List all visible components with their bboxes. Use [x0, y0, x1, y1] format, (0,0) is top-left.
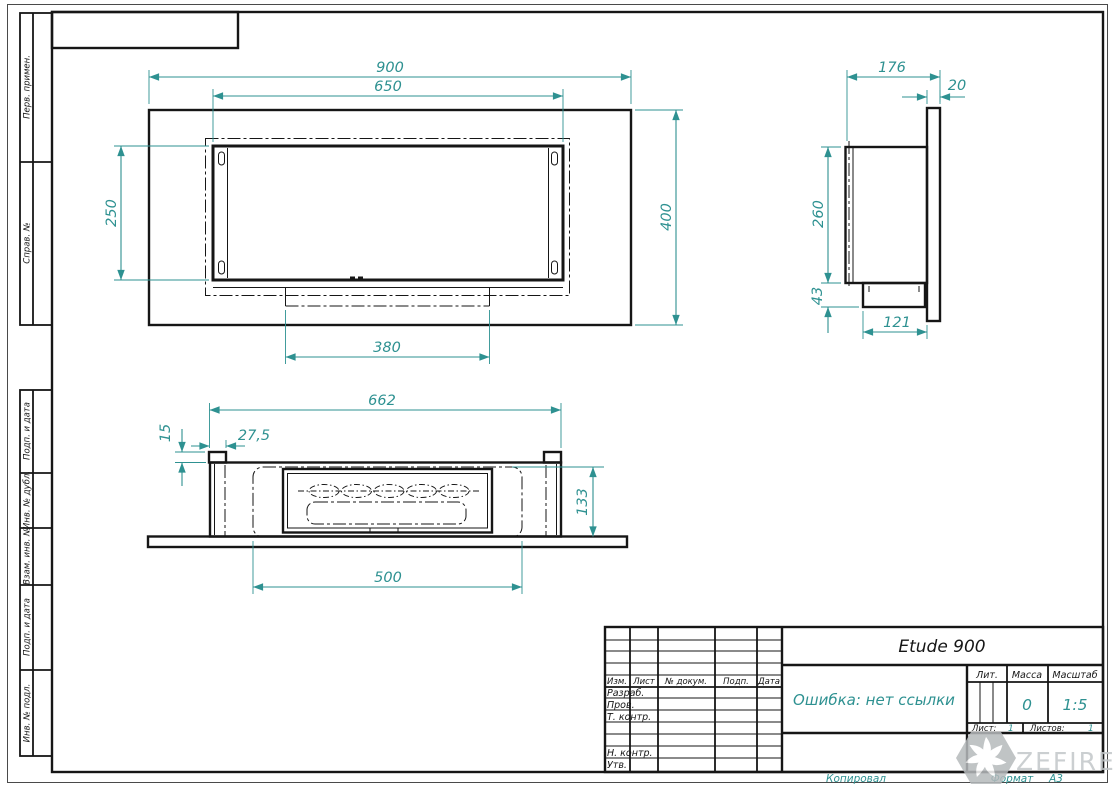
tb-col-podp: Подп. — [723, 677, 749, 687]
tb-row-razrab: Разраб. — [607, 688, 644, 699]
watermark-logo: ZEFIRE — [956, 732, 1114, 784]
bottom-view: 662 15 27,5 133 500 — [148, 393, 627, 594]
dim-side-bottom-box-depth: 121 — [883, 315, 911, 331]
tb-row-nkontr: Н. контр. — [607, 748, 653, 759]
margin-label-perv-primen: Перв. примен. — [23, 55, 33, 119]
drawing-sheet: Перв. примен. Справ. № Подп. и дата Инв.… — [0, 0, 1114, 786]
dim-bottom-tab-offset: 27,5 — [238, 428, 270, 444]
margin-label-podp-data-top: Подп. и дата — [23, 402, 33, 460]
margin-label-vzam-inv: Взам. инв. № — [23, 527, 33, 585]
margin-label-podp-data-bottom: Подп. и дата — [23, 598, 33, 656]
tb-sheets-label: Листов: — [1029, 724, 1065, 734]
tb-document-name: Ошибка: нет ссылки — [793, 691, 955, 709]
margin-label-sprav-no: Справ. № — [23, 222, 33, 264]
dim-side-depth: 176 — [878, 60, 906, 76]
dim-front-opening-height: 250 — [104, 199, 120, 227]
tb-col-data: Дата — [757, 677, 780, 687]
margin-label-inv-podl: Инв. № подл. — [23, 684, 33, 743]
dim-bottom-tab-height: 15 — [158, 424, 174, 442]
tb-mass-label: Масса — [1012, 670, 1042, 681]
tb-lit-label: Лит. — [975, 670, 998, 681]
side-view: 176 20 260 43 121 — [810, 60, 966, 339]
tb-designation: Etude 900 — [898, 637, 985, 657]
dim-front-burner-box-width: 380 — [373, 340, 401, 356]
dim-bottom-burner-width: 500 — [374, 570, 402, 586]
reserve-box — [52, 12, 238, 48]
dim-front-width: 900 — [376, 60, 404, 76]
margin-label-inv-dubl: Инв. № дубл. — [23, 471, 33, 529]
tb-sheet-value: 1 — [1008, 724, 1014, 734]
dim-side-panel-thickness: 20 — [948, 78, 966, 94]
tb-row-tkontr: Т. контр. — [607, 712, 651, 723]
tb-col-list: Лист — [632, 677, 656, 687]
margin-column: Перв. примен. Справ. № Подп. и дата Инв.… — [20, 13, 52, 756]
footer-copied-label: Копировал — [826, 773, 886, 785]
dim-bottom-body-width: 662 — [368, 393, 396, 409]
dim-front-opening-width: 650 — [374, 79, 402, 95]
tb-col-dokum: № докум. — [664, 677, 707, 687]
front-view: 900 650 250 400 380 — [104, 60, 683, 364]
tb-scale-label: Масштаб — [1052, 670, 1097, 681]
dim-side-body-height: 260 — [811, 200, 827, 228]
dim-bottom-inner-depth: 133 — [575, 488, 591, 516]
dim-side-bottom-box-height: 43 — [810, 287, 826, 305]
tb-scale-value: 1:5 — [1063, 696, 1088, 714]
tb-mass-value: 0 — [1022, 696, 1032, 714]
dim-front-height: 400 — [659, 203, 675, 231]
tb-row-prov: Пров. — [607, 700, 635, 711]
tb-sheets-value: 1 — [1088, 724, 1094, 734]
tb-col-izm: Изм. — [607, 677, 627, 687]
watermark-text: ZEFIRE — [1016, 747, 1114, 776]
tb-row-utv: Утв. — [607, 760, 627, 771]
